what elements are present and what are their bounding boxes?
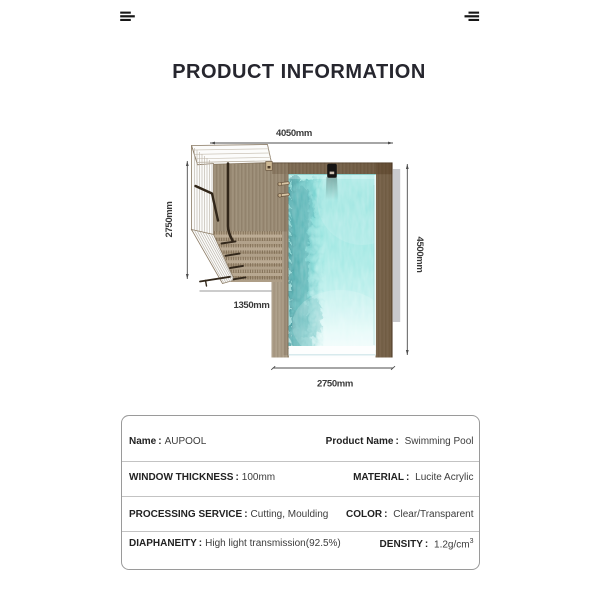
svg-text:2750mm: 2750mm (164, 202, 175, 238)
svg-text:2750mm: 2750mm (317, 379, 353, 390)
svg-text:4050mm: 4050mm (276, 128, 312, 139)
svg-text:4500mm: 4500mm (414, 237, 425, 273)
svg-text:1350mm: 1350mm (234, 300, 270, 311)
